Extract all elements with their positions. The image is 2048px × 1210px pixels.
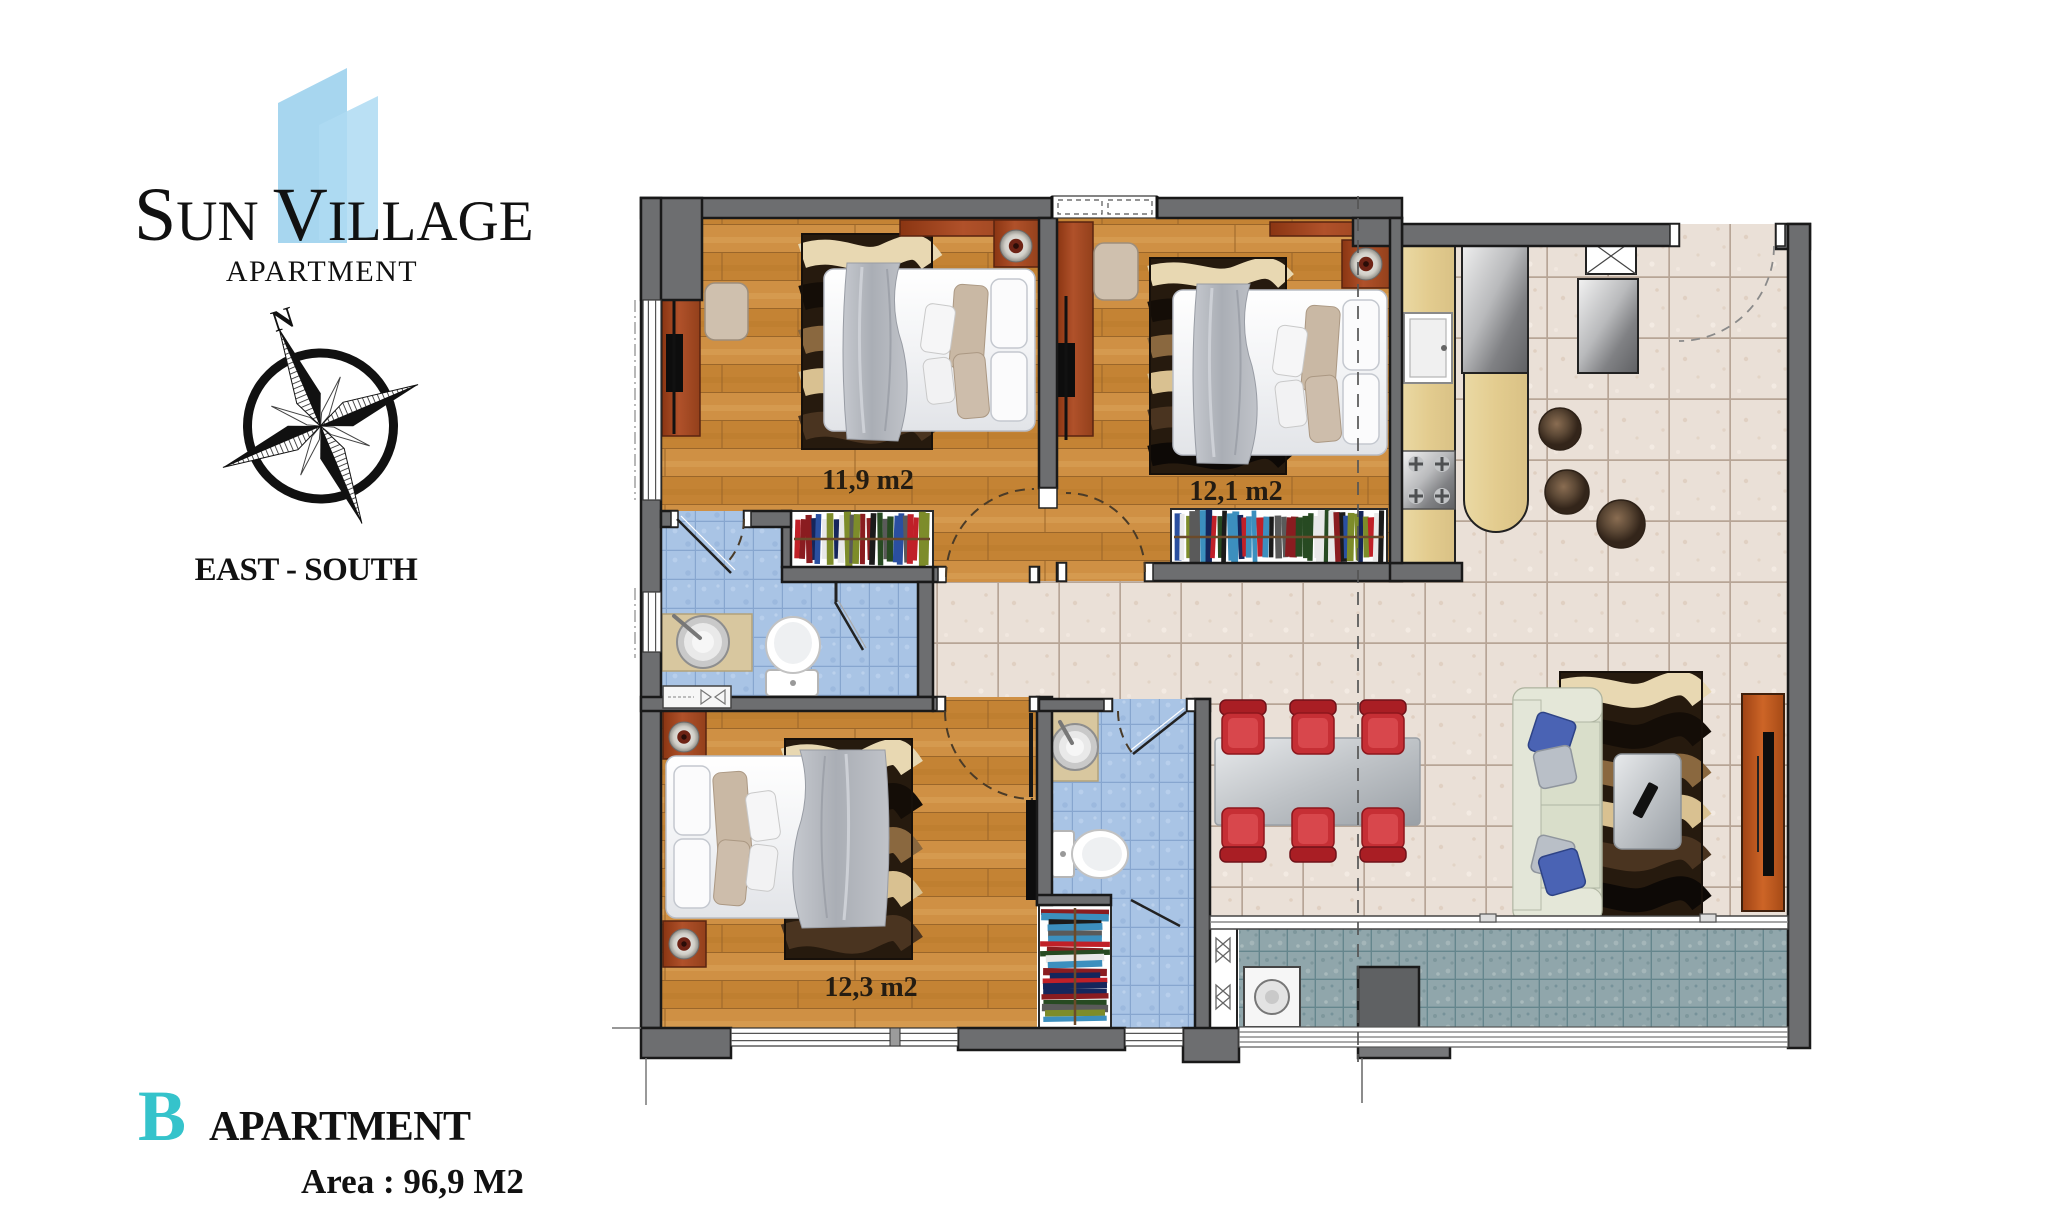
svg-text:12,1 m2: 12,1 m2 bbox=[1189, 476, 1282, 507]
svg-text:APARTMENT: APARTMENT bbox=[226, 255, 418, 288]
svg-text:11,9 m2: 11,9 m2 bbox=[822, 465, 914, 496]
svg-text:B: B bbox=[138, 1076, 186, 1156]
svg-text:Area : 96,9 M2: Area : 96,9 M2 bbox=[301, 1162, 524, 1201]
svg-text:EAST - SOUTH: EAST - SOUTH bbox=[195, 552, 418, 588]
svg-text:APARTMENT: APARTMENT bbox=[209, 1104, 471, 1150]
svg-text:12,3 m2: 12,3 m2 bbox=[824, 972, 917, 1003]
